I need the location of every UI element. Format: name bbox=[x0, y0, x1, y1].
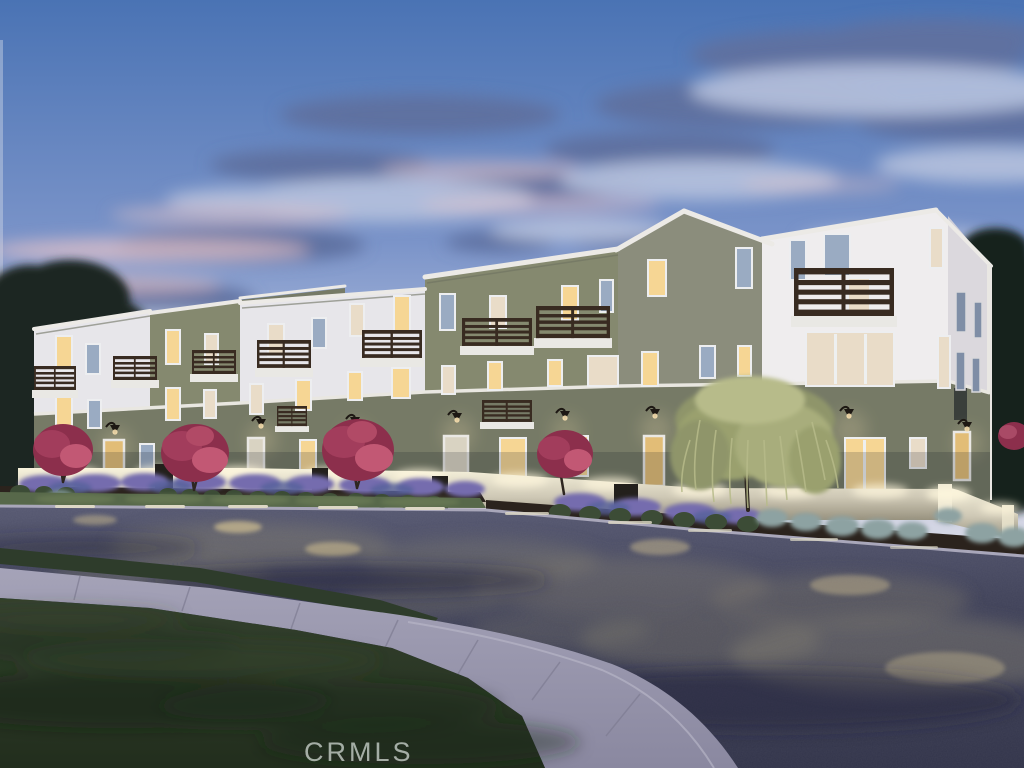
property-photo: CRMLS bbox=[0, 0, 1024, 768]
dusk-townhome-scene: CRMLS bbox=[0, 0, 1024, 768]
watermark: CRMLS bbox=[304, 737, 414, 767]
utility-vent-panel bbox=[954, 388, 967, 420]
large-corner-window bbox=[806, 332, 894, 386]
